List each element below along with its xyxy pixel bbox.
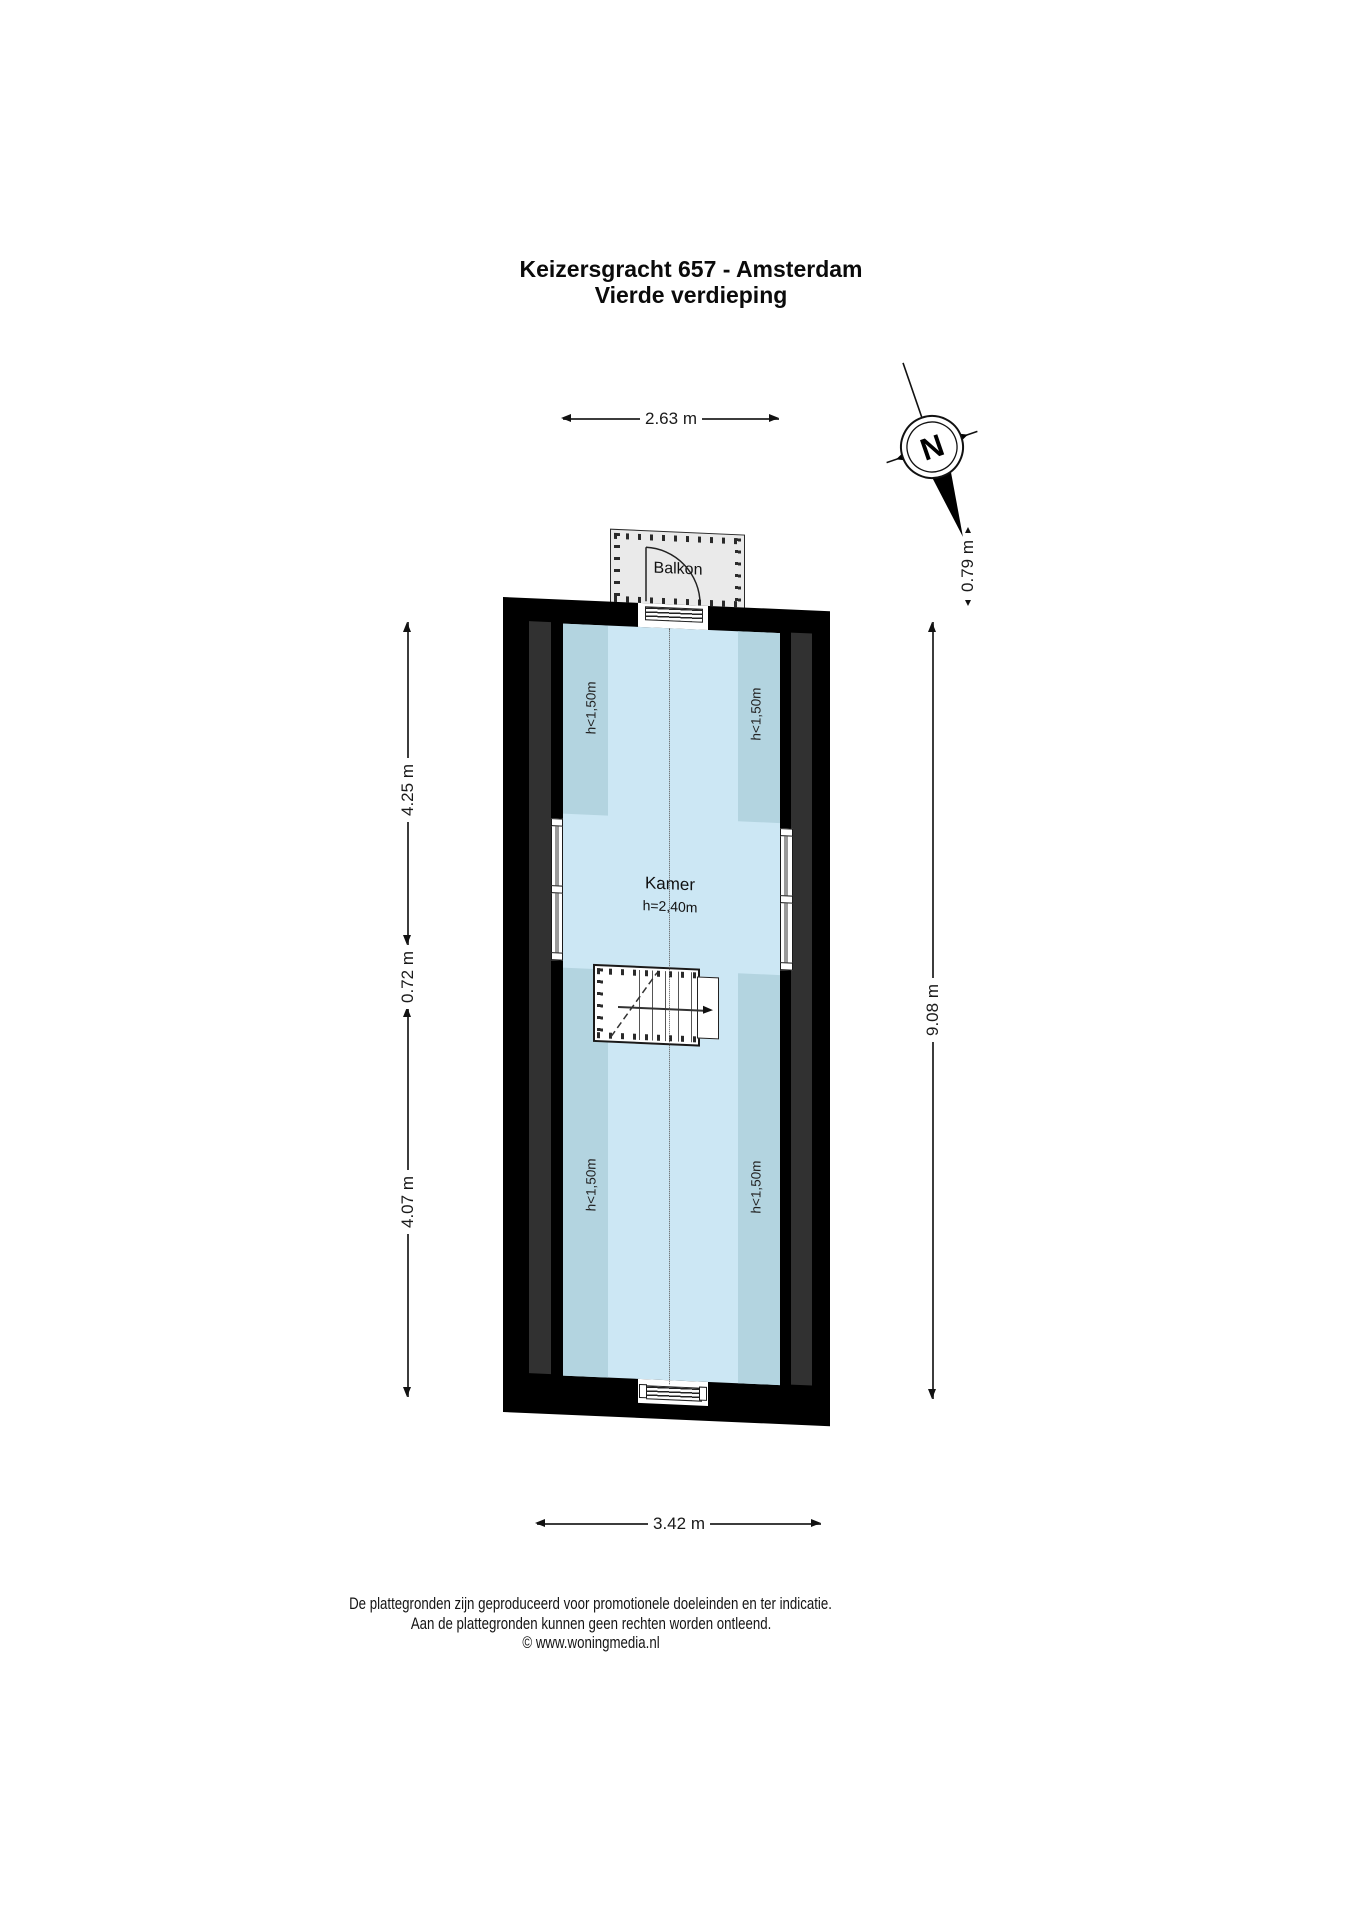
disclaimer-line1: De plattegronden zijn geproduceerd voor …: [350, 1594, 833, 1614]
page-title-line1: Keizersgracht 657 - Amsterdam: [441, 256, 941, 282]
window-divider: [780, 895, 793, 904]
room-height-label: h=2,40m: [643, 897, 698, 915]
arrowhead: [561, 414, 571, 422]
balcony-railing-left: [614, 533, 620, 602]
arrowhead: [811, 1519, 821, 1527]
dimension-bottom-width: 3.42 m: [648, 1514, 710, 1534]
arrowhead: [403, 935, 411, 945]
balcony-railing-right: [735, 538, 741, 607]
floorplan-page: Keizersgracht 657 - Amsterdam Vierde ver…: [0, 0, 1358, 1920]
window-right: [780, 828, 793, 971]
stair-break-line: [601, 966, 665, 1043]
window-divider: [551, 818, 563, 827]
arrowhead: [928, 622, 936, 632]
wall-inner-strip-right: [791, 633, 812, 1386]
balcony-railing-top: [614, 533, 741, 545]
centerline-dotted: [669, 628, 670, 1384]
rear-window: [646, 1385, 702, 1401]
window-divider: [551, 952, 563, 961]
balcony-door-threshold: [645, 606, 703, 623]
arrowhead: [965, 527, 971, 533]
arrowhead: [965, 600, 971, 606]
disclaimer-line2: Aan de plattegronden kunnen geen rechten…: [411, 1614, 772, 1634]
window-left: [551, 818, 563, 961]
wall-inner-strip-left: [529, 621, 551, 1374]
stair-tread: [691, 972, 692, 1042]
dimension-balcony-depth: 0.79 m: [958, 534, 978, 598]
stair-direction-arrowhead: [703, 1006, 713, 1014]
dimension-right-total: 9.08 m: [923, 978, 943, 1042]
disclaimer-line3: © www.woningmedia.nl: [522, 1633, 659, 1653]
arrowhead: [928, 1389, 936, 1399]
low-zone-label-top-left: h<1,50m: [584, 681, 599, 735]
page-title-line2: Vierde verdieping: [441, 282, 941, 308]
arrowhead: [403, 1387, 411, 1397]
dimension-left-upper: 4.25 m: [398, 758, 418, 822]
floorplan-drawing: Balkon: [503, 521, 830, 1435]
page-title: Keizersgracht 657 - Amsterdam Vierde ver…: [441, 256, 941, 308]
arrowhead: [403, 622, 411, 632]
rear-window-cap-left: [639, 1384, 647, 1398]
disclaimer: De plattegronden zijn geproduceerd voor …: [241, 1594, 941, 1653]
arrowhead: [769, 414, 779, 422]
dimension-top-width: 2.63 m: [640, 409, 702, 429]
window-divider: [780, 962, 793, 971]
low-zone-label-top-right: h<1,50m: [749, 687, 764, 741]
low-zone-label-bottom-left: h<1,50m: [584, 1158, 599, 1212]
window-divider: [780, 828, 793, 837]
door-swing-icon: [642, 543, 706, 608]
compass-rose-icon: N: [862, 350, 1002, 545]
dimension-left-lower: 4.07 m: [398, 1170, 418, 1234]
room-name-label: Kamer: [645, 873, 695, 895]
arrowhead: [535, 1519, 545, 1527]
stair-tread: [678, 972, 679, 1042]
stair-tread: [665, 971, 666, 1041]
window-divider: [551, 885, 563, 894]
rear-window-cap-right: [699, 1387, 707, 1401]
dimension-left-middle: 0.72 m: [398, 945, 418, 1009]
low-zone-label-bottom-right: h<1,50m: [749, 1160, 764, 1214]
